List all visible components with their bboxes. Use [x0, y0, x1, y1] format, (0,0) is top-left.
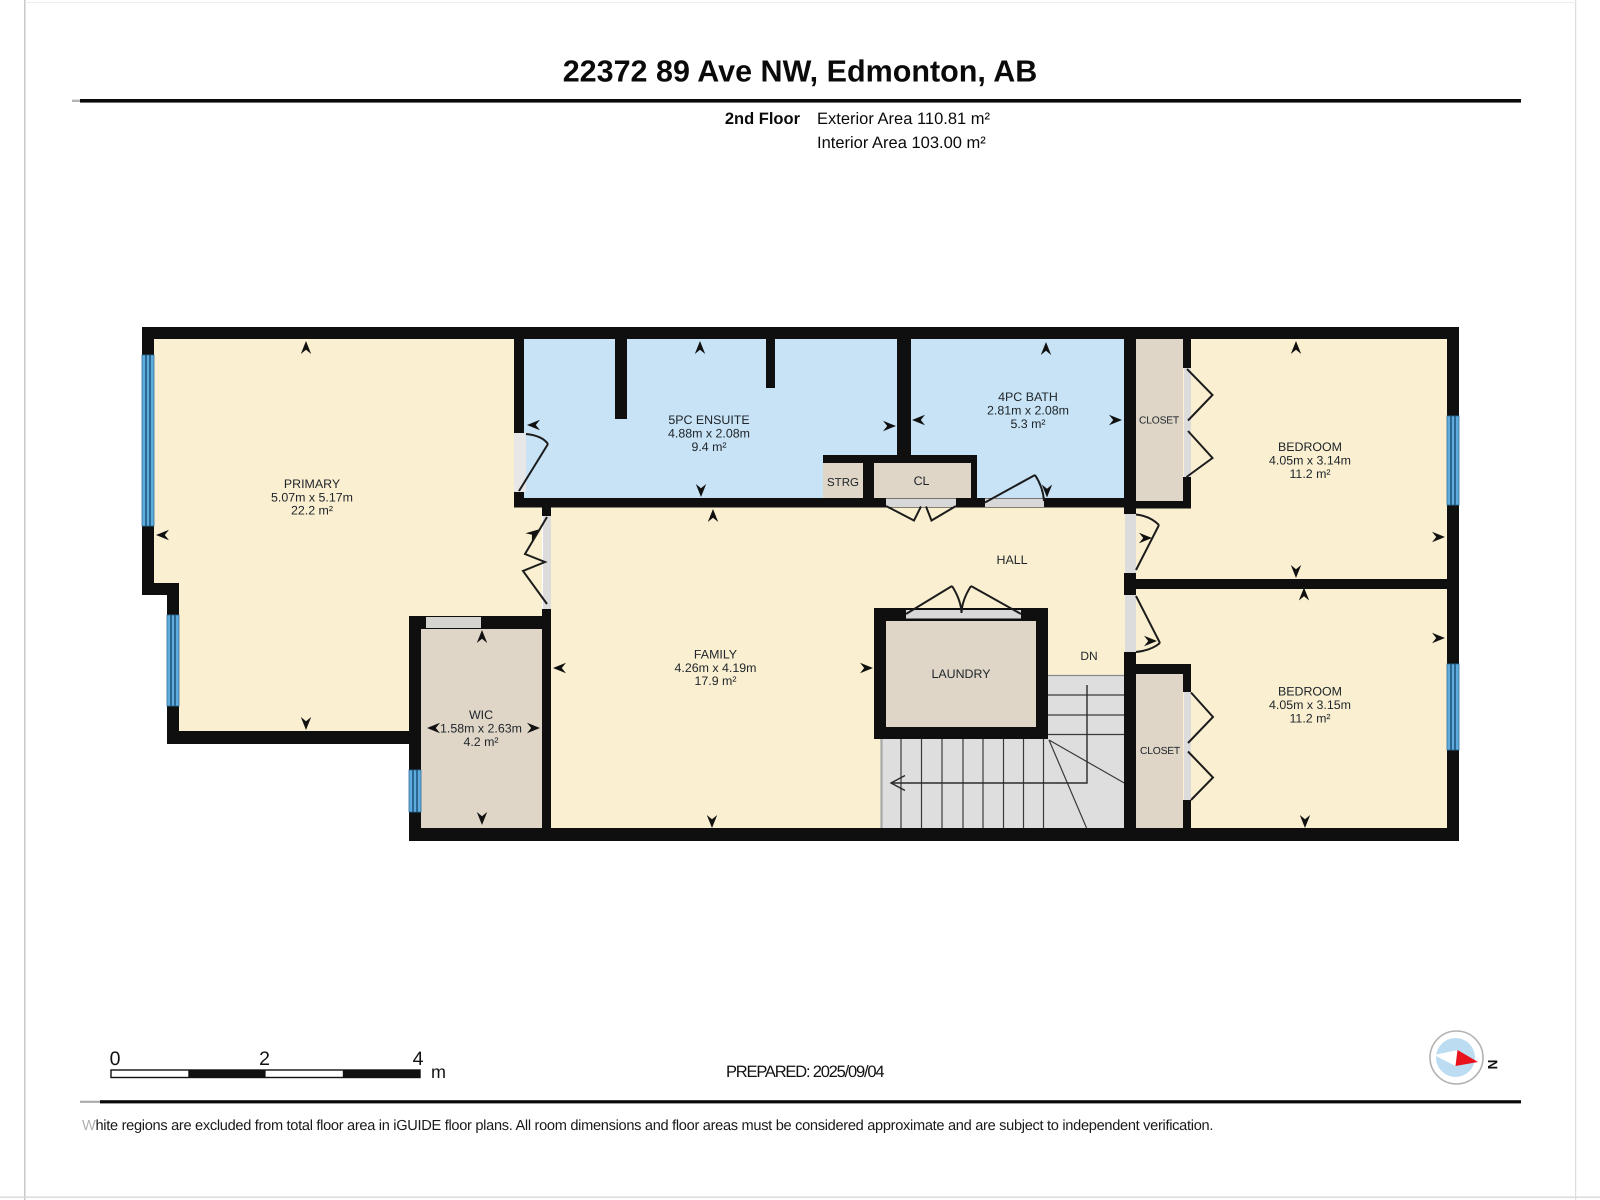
svg-text:HALL: HALL: [997, 553, 1028, 567]
svg-text:N: N: [1485, 1060, 1500, 1070]
svg-text:BEDROOM: BEDROOM: [1278, 685, 1342, 699]
svg-text:17.9 m²: 17.9 m²: [694, 674, 736, 688]
svg-text:4: 4: [413, 1048, 424, 1070]
svg-text:4PC BATH: 4PC BATH: [998, 390, 1058, 404]
svg-text:White regions are excluded fro: White regions are excluded from total fl…: [82, 1118, 1213, 1134]
svg-text:m: m: [431, 1062, 446, 1082]
svg-text:LAUNDRY: LAUNDRY: [932, 667, 991, 681]
svg-text:4.05m x 3.15m: 4.05m x 3.15m: [1269, 698, 1351, 712]
svg-text:2nd Floor: 2nd Floor: [725, 110, 801, 128]
svg-text:STRG: STRG: [827, 477, 859, 489]
svg-text:WIC: WIC: [469, 708, 493, 722]
svg-text:11.2 m²: 11.2 m²: [1289, 467, 1330, 481]
svg-text:BEDROOM: BEDROOM: [1278, 440, 1342, 454]
svg-text:2: 2: [259, 1048, 270, 1070]
svg-text:5.3 m²: 5.3 m²: [1010, 417, 1045, 431]
svg-text:Interior Area 103.00 m²: Interior Area 103.00 m²: [817, 134, 986, 152]
svg-text:22.2 m²: 22.2 m²: [291, 504, 333, 518]
svg-text:1.58m x 2.63m: 1.58m x 2.63m: [440, 722, 522, 736]
svg-text:4.88m x 2.08m: 4.88m x 2.08m: [668, 426, 750, 440]
svg-text:PREPARED: 2025/09/04: PREPARED: 2025/09/04: [726, 1063, 884, 1081]
svg-text:DN: DN: [1080, 649, 1097, 663]
svg-text:PRIMARY: PRIMARY: [284, 477, 340, 491]
svg-text:2.81m x 2.08m: 2.81m x 2.08m: [987, 403, 1069, 417]
svg-text:4.2 m²: 4.2 m²: [463, 735, 498, 749]
svg-text:4.26m x 4.19m: 4.26m x 4.19m: [675, 661, 757, 675]
svg-text:CL: CL: [914, 474, 930, 488]
svg-text:5.07m x 5.17m: 5.07m x 5.17m: [271, 491, 353, 505]
svg-text:FAMILY: FAMILY: [694, 647, 737, 661]
svg-text:22372 89 Ave NW, Edmonton, AB: 22372 89 Ave NW, Edmonton, AB: [563, 55, 1038, 89]
svg-text:9.4 m²: 9.4 m²: [691, 440, 726, 454]
svg-text:CLOSET: CLOSET: [1140, 746, 1181, 757]
svg-text:Exterior Area 110.81 m²: Exterior Area 110.81 m²: [817, 110, 991, 128]
svg-text:0: 0: [110, 1048, 121, 1070]
svg-text:CLOSET: CLOSET: [1139, 416, 1180, 427]
svg-text:5PC ENSUITE: 5PC ENSUITE: [668, 413, 749, 427]
svg-text:11.2 m²: 11.2 m²: [1289, 711, 1330, 725]
svg-text:4.05m x 3.14m: 4.05m x 3.14m: [1269, 453, 1351, 467]
